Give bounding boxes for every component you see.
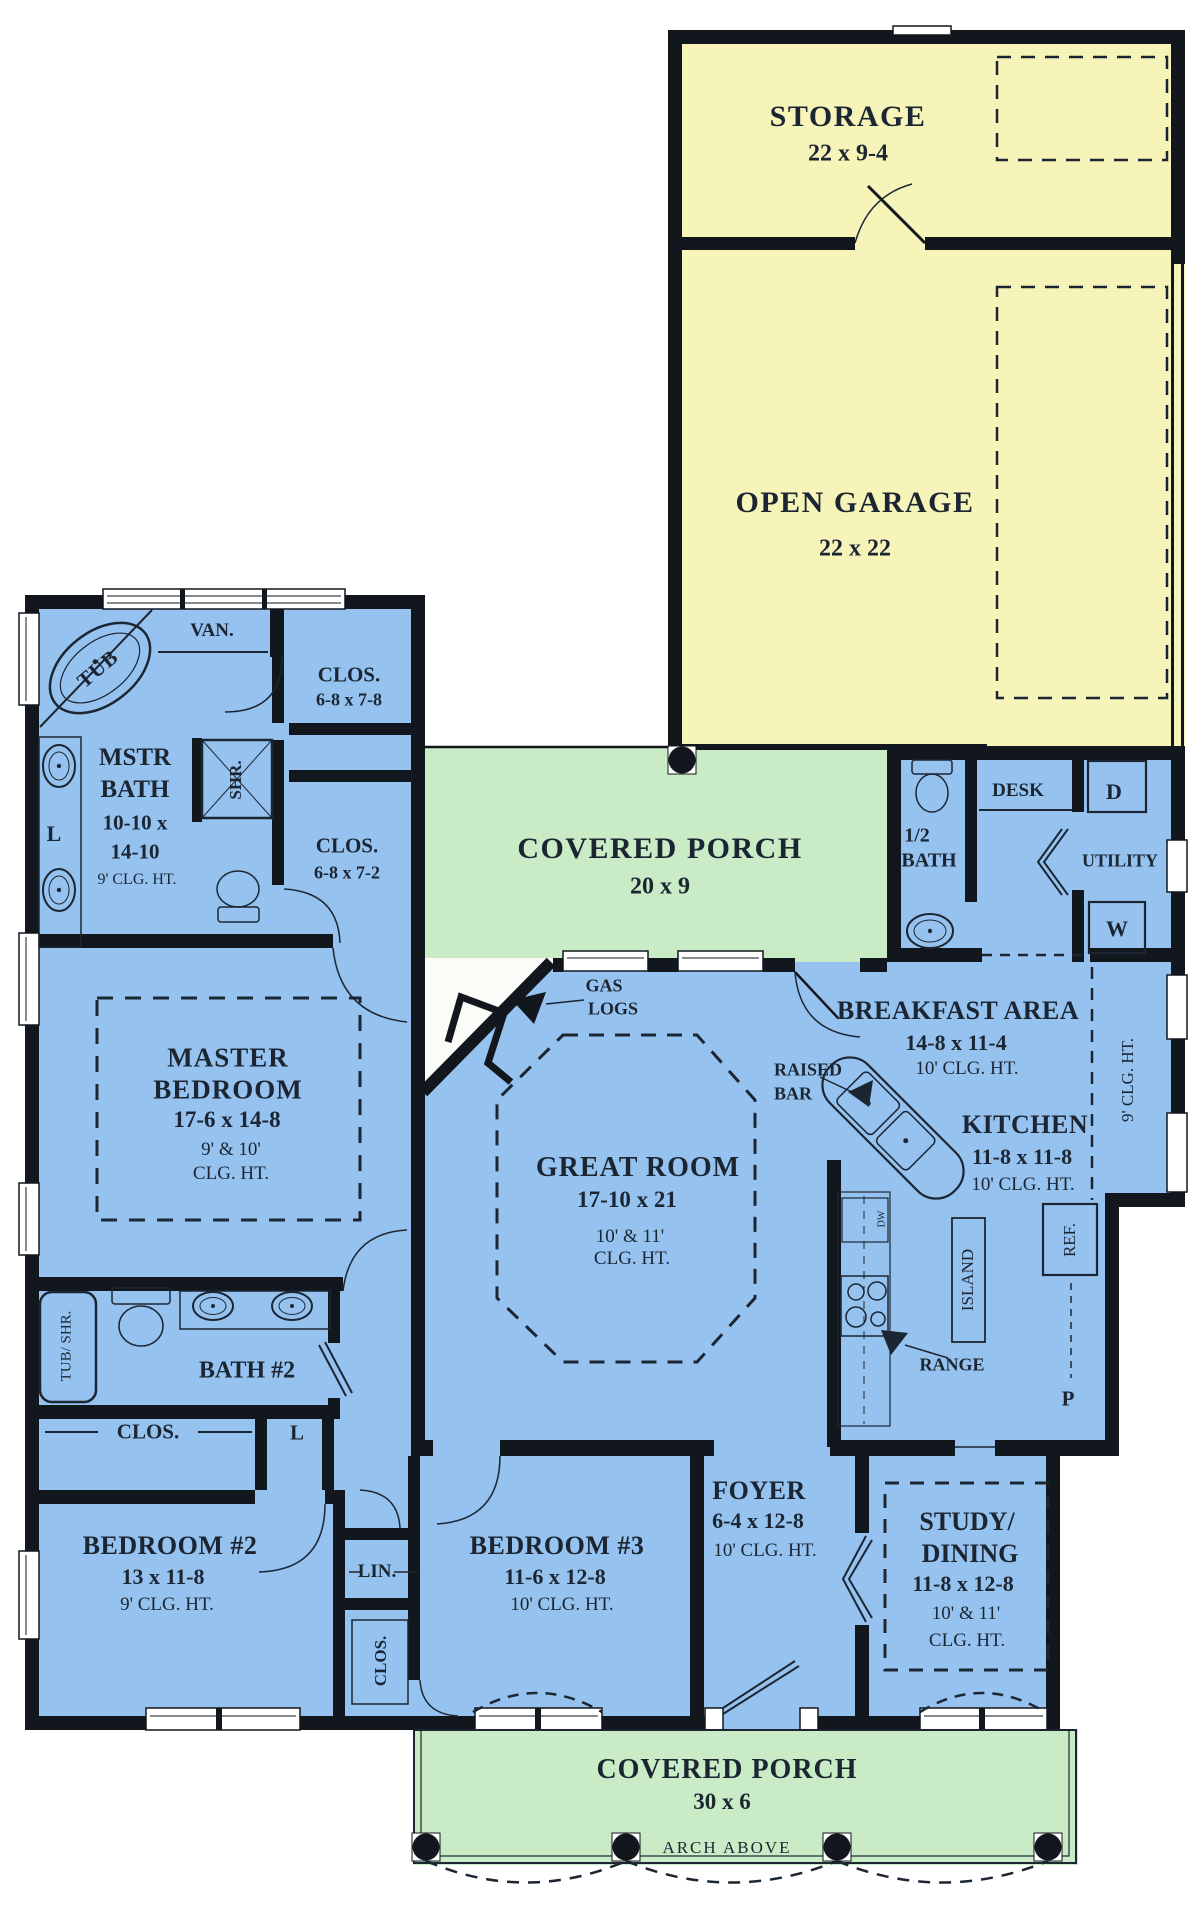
dishwasher-label: DW [877, 1211, 888, 1228]
bedroom2-ceiling: 9' CLG. HT. [120, 1594, 214, 1616]
column-icon [1035, 1834, 1062, 1861]
bedroom2-dims: 13 x 11-8 [121, 1564, 204, 1590]
logs-label: LOGS [588, 999, 638, 1020]
bedroom3-dims: 11-6 x 12-8 [504, 1564, 605, 1590]
foyer-label: FOYER [712, 1476, 806, 1506]
study-label-2: DINING [922, 1539, 1019, 1569]
great-room-label: GREAT ROOM [536, 1152, 740, 1184]
front-porch-dims: 30 x 6 [693, 1789, 751, 1815]
master-bedroom-ceiling-2: CLG. HT. [193, 1163, 269, 1185]
front-porch-note: ARCH ABOVE [662, 1838, 791, 1858]
floor-plan-svg [0, 0, 1200, 1928]
dryer-label: D [1106, 779, 1122, 805]
closet2-label: CLOS. [316, 834, 378, 859]
bedroom3-closet-label: CLOS. [371, 1636, 391, 1687]
hall-closet-label: CLOS. [117, 1420, 179, 1445]
column-icon [413, 1834, 440, 1861]
pantry-label: P [1062, 1387, 1075, 1412]
garage-dims: 22 x 22 [819, 536, 891, 563]
range-label: RANGE [919, 1355, 984, 1376]
kitchen-dims: 11-8 x 11-8 [972, 1144, 1072, 1170]
breakfast-dims: 14-8 x 11-4 [905, 1030, 1006, 1056]
closet1-label: CLOS. [318, 663, 380, 688]
great-room-dims: 17-10 x 21 [577, 1187, 677, 1213]
washer-label: W [1106, 916, 1128, 942]
island-label: ISLAND [958, 1249, 978, 1311]
greatroom-kitchen-floor [425, 1205, 1112, 1447]
study-label-1: STUDY/ [919, 1507, 1014, 1537]
floor-plan: STORAGE 22 x 9-4 OPEN GARAGE 22 x 22 COV… [0, 0, 1200, 1928]
rear-porch-dims: 20 x 9 [630, 874, 690, 901]
great-room-ceiling-2: CLG. HT. [594, 1248, 670, 1270]
side-ceiling-label: 9' CLG. HT. [1118, 1038, 1138, 1122]
master-bedroom-label-1: MASTER [167, 1043, 289, 1074]
storage-label: STORAGE [770, 100, 927, 134]
column-icon [824, 1834, 851, 1861]
master-bath-ceiling: 9' CLG. HT. [97, 871, 176, 889]
storage-dims: 22 x 9-4 [808, 141, 888, 168]
bedroom3-label: BEDROOM #3 [470, 1531, 645, 1561]
column-icon [669, 747, 696, 774]
front-porch-label: COVERED PORCH [596, 1754, 857, 1786]
breakfast-ceiling: 10' CLG. HT. [915, 1058, 1018, 1080]
master-bedroom-ceiling-1: 9' & 10' [201, 1139, 261, 1161]
bedroom3-ceiling: 10' CLG. HT. [510, 1594, 613, 1616]
great-room-ceiling-1: 10' & 11' [596, 1226, 664, 1248]
linen-label: L [47, 821, 62, 847]
master-bath-dims-2: 14-10 [111, 840, 160, 865]
master-bath-dims-1: 10-10 x [103, 811, 168, 836]
kitchen-label: KITCHEN [962, 1110, 1088, 1140]
raised-bar-label-1: RAISED [774, 1060, 842, 1081]
refrigerator-label: REF. [1060, 1223, 1080, 1257]
bath2-label: BATH #2 [199, 1358, 295, 1385]
foyer-ceiling: 10' CLG. HT. [713, 1540, 816, 1562]
master-bedroom-label-2: BEDROOM [153, 1075, 303, 1106]
column-icon [613, 1834, 640, 1861]
study-ceiling-2: CLG. HT. [929, 1630, 1005, 1652]
half-bath-label-2: BATH [901, 850, 956, 873]
vanity-label: VAN. [190, 620, 233, 642]
closet1-dims: 6-8 x 7-8 [316, 690, 382, 711]
rear-porch-label: COVERED PORCH [517, 832, 802, 866]
hall-linen-label: L [290, 1421, 304, 1446]
desk-label: DESK [992, 780, 1044, 802]
breakfast-label: BREAKFAST AREA [837, 996, 1079, 1026]
bedroom2-label: BEDROOM #2 [83, 1531, 258, 1561]
master-bath-label-2: BATH [101, 776, 170, 804]
study-ceiling-1: 10' & 11' [932, 1603, 1000, 1625]
gas-label: GAS [585, 976, 622, 997]
kitchen-ceiling: 10' CLG. HT. [971, 1174, 1074, 1196]
foyer-dims: 6-4 x 12-8 [712, 1508, 804, 1534]
lin-label: LIN. [358, 1561, 397, 1583]
utility-label: UTILITY [1082, 851, 1158, 872]
study-dims: 11-8 x 12-8 [912, 1571, 1013, 1597]
closet2-dims: 6-8 x 7-2 [314, 863, 380, 884]
master-bedroom-dims: 17-6 x 14-8 [173, 1107, 280, 1133]
tub-shower-label: TUB/ SHR. [59, 1311, 76, 1382]
shower-label: SHR. [226, 760, 246, 799]
garage-label: OPEN GARAGE [735, 486, 974, 520]
garage-floor [668, 30, 1185, 750]
master-bath-label-1: MSTR [99, 744, 171, 772]
half-bath-label-1: 1/2 [904, 825, 930, 848]
raised-bar-label-2: BAR [774, 1084, 812, 1105]
